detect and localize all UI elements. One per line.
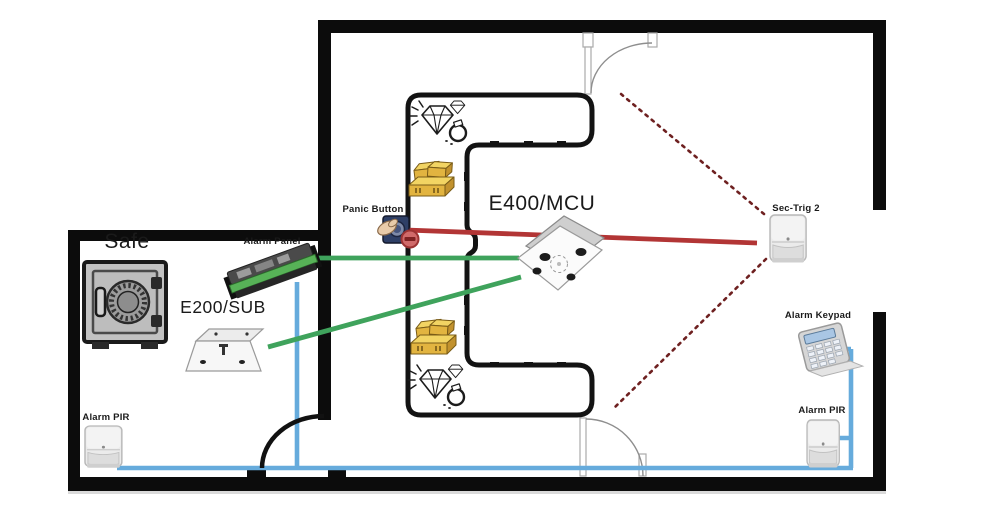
alarm-panel-icon [222,241,323,300]
alarm-pir-right-label: Alarm PIR [789,405,855,416]
e200-sub-label: E200/SUB [166,297,280,318]
alarm-pir-left-icon [85,426,122,468]
beam-to-top-door [621,94,764,214]
top-door-swing-icon [583,33,657,94]
safe-room-label: Safe [94,230,160,254]
e400-mcu-label: E400/MCU [476,192,608,216]
safe-room-door-swing-icon [262,416,324,468]
beam-to-bottom-door [613,259,766,409]
panic-button-label: Panic Button [333,204,413,215]
sec-trig-2-label: Sec-Trig 2 [762,203,830,214]
pir-beam-lines [613,94,766,409]
floor-plan-diagram: Safe Alarm Panel E200/SUB Panic Button E… [0,0,1006,508]
alarm-pir-left-label: Alarm PIR [73,412,139,423]
alarm-panel-label: Alarm Panel [229,236,315,247]
alarm-keypad-label: Alarm Keypad [776,310,860,321]
e200-sub-icon [186,329,263,371]
sec-trig-2-icon [770,215,806,263]
safe-icon [84,262,166,349]
alarm-pir-right-icon [807,420,839,468]
floor-plan-canvas [0,0,1006,508]
e400-mcu-icon [518,216,604,290]
